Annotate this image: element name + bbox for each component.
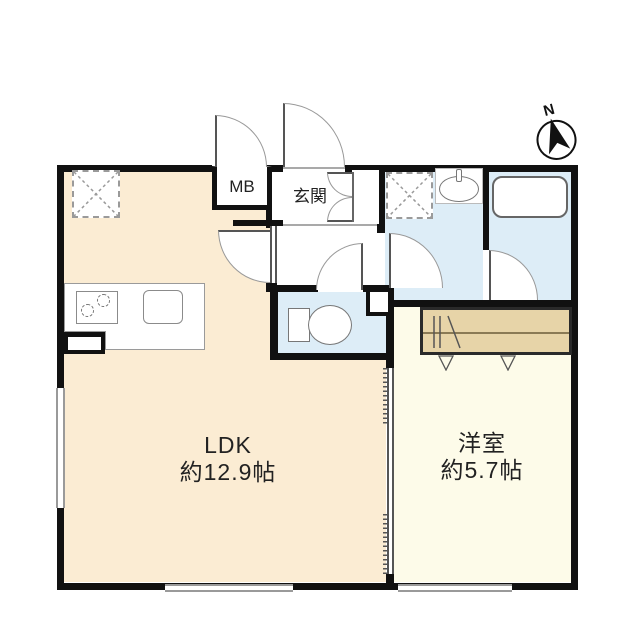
north-compass-icon: N: [518, 96, 590, 168]
refrigerator-space: [72, 170, 120, 218]
window-bottom-ldk: [165, 584, 293, 592]
stove-burner-icon: [81, 304, 94, 317]
sliding-door-partition: [387, 368, 394, 574]
western-room-label: 洋室 約5.7帖: [402, 430, 562, 484]
north-label: N: [542, 101, 557, 120]
wall-left: [57, 165, 64, 590]
pipe-space-box: [366, 288, 392, 316]
wall-washroom-bathroom: [483, 165, 489, 250]
hanger-icon: [428, 314, 468, 352]
floorplan: MB: [0, 0, 640, 640]
wall-partition-bottom: [386, 574, 394, 586]
sliding-door-track-bottom: [383, 514, 388, 574]
meter-box-door: [215, 115, 267, 167]
kitchen-sink: [143, 290, 183, 324]
entrance-label: 玄関: [278, 188, 342, 206]
ldk-name: LDK: [148, 432, 308, 459]
sliding-door-track-top: [383, 368, 388, 426]
bathtub-icon: [492, 176, 568, 218]
ldk-area: 約12.9帖: [148, 459, 308, 486]
kitchen-pipe-space-box: [64, 333, 105, 354]
cross-icon: [74, 172, 118, 216]
faucet-icon: [456, 169, 462, 182]
shoe-closet: [352, 170, 379, 224]
washing-machine-space: [386, 172, 433, 219]
wall-western-top: [386, 300, 578, 307]
western-room-area: 約5.7帖: [402, 457, 562, 484]
cross-icon: [388, 174, 431, 217]
toilet-tank: [288, 308, 310, 342]
shoe-closet-front-line: [352, 172, 354, 222]
meter-box-label: MB: [214, 178, 270, 196]
closet: [420, 307, 572, 355]
wall-corridor-ldk: [270, 226, 277, 290]
wall-toilet-left: [270, 285, 278, 360]
entrance-door: [283, 103, 345, 167]
kitchen-counter-extension: [105, 331, 205, 350]
closet-door-mark-icon: [500, 355, 516, 371]
window-bottom-western: [398, 584, 512, 592]
ldk-label: LDK 約12.9帖: [148, 432, 308, 486]
stove-burner-icon: [97, 294, 110, 307]
entrance-step-line: [283, 224, 380, 226]
window-left: [56, 388, 65, 508]
toilet-bowl-icon: [308, 305, 352, 345]
western-room-name: 洋室: [402, 430, 562, 457]
wall-right: [571, 165, 578, 590]
stove: [76, 291, 118, 324]
wall-toilet-bottom: [270, 353, 394, 360]
closet-door-mark-icon: [438, 355, 454, 371]
